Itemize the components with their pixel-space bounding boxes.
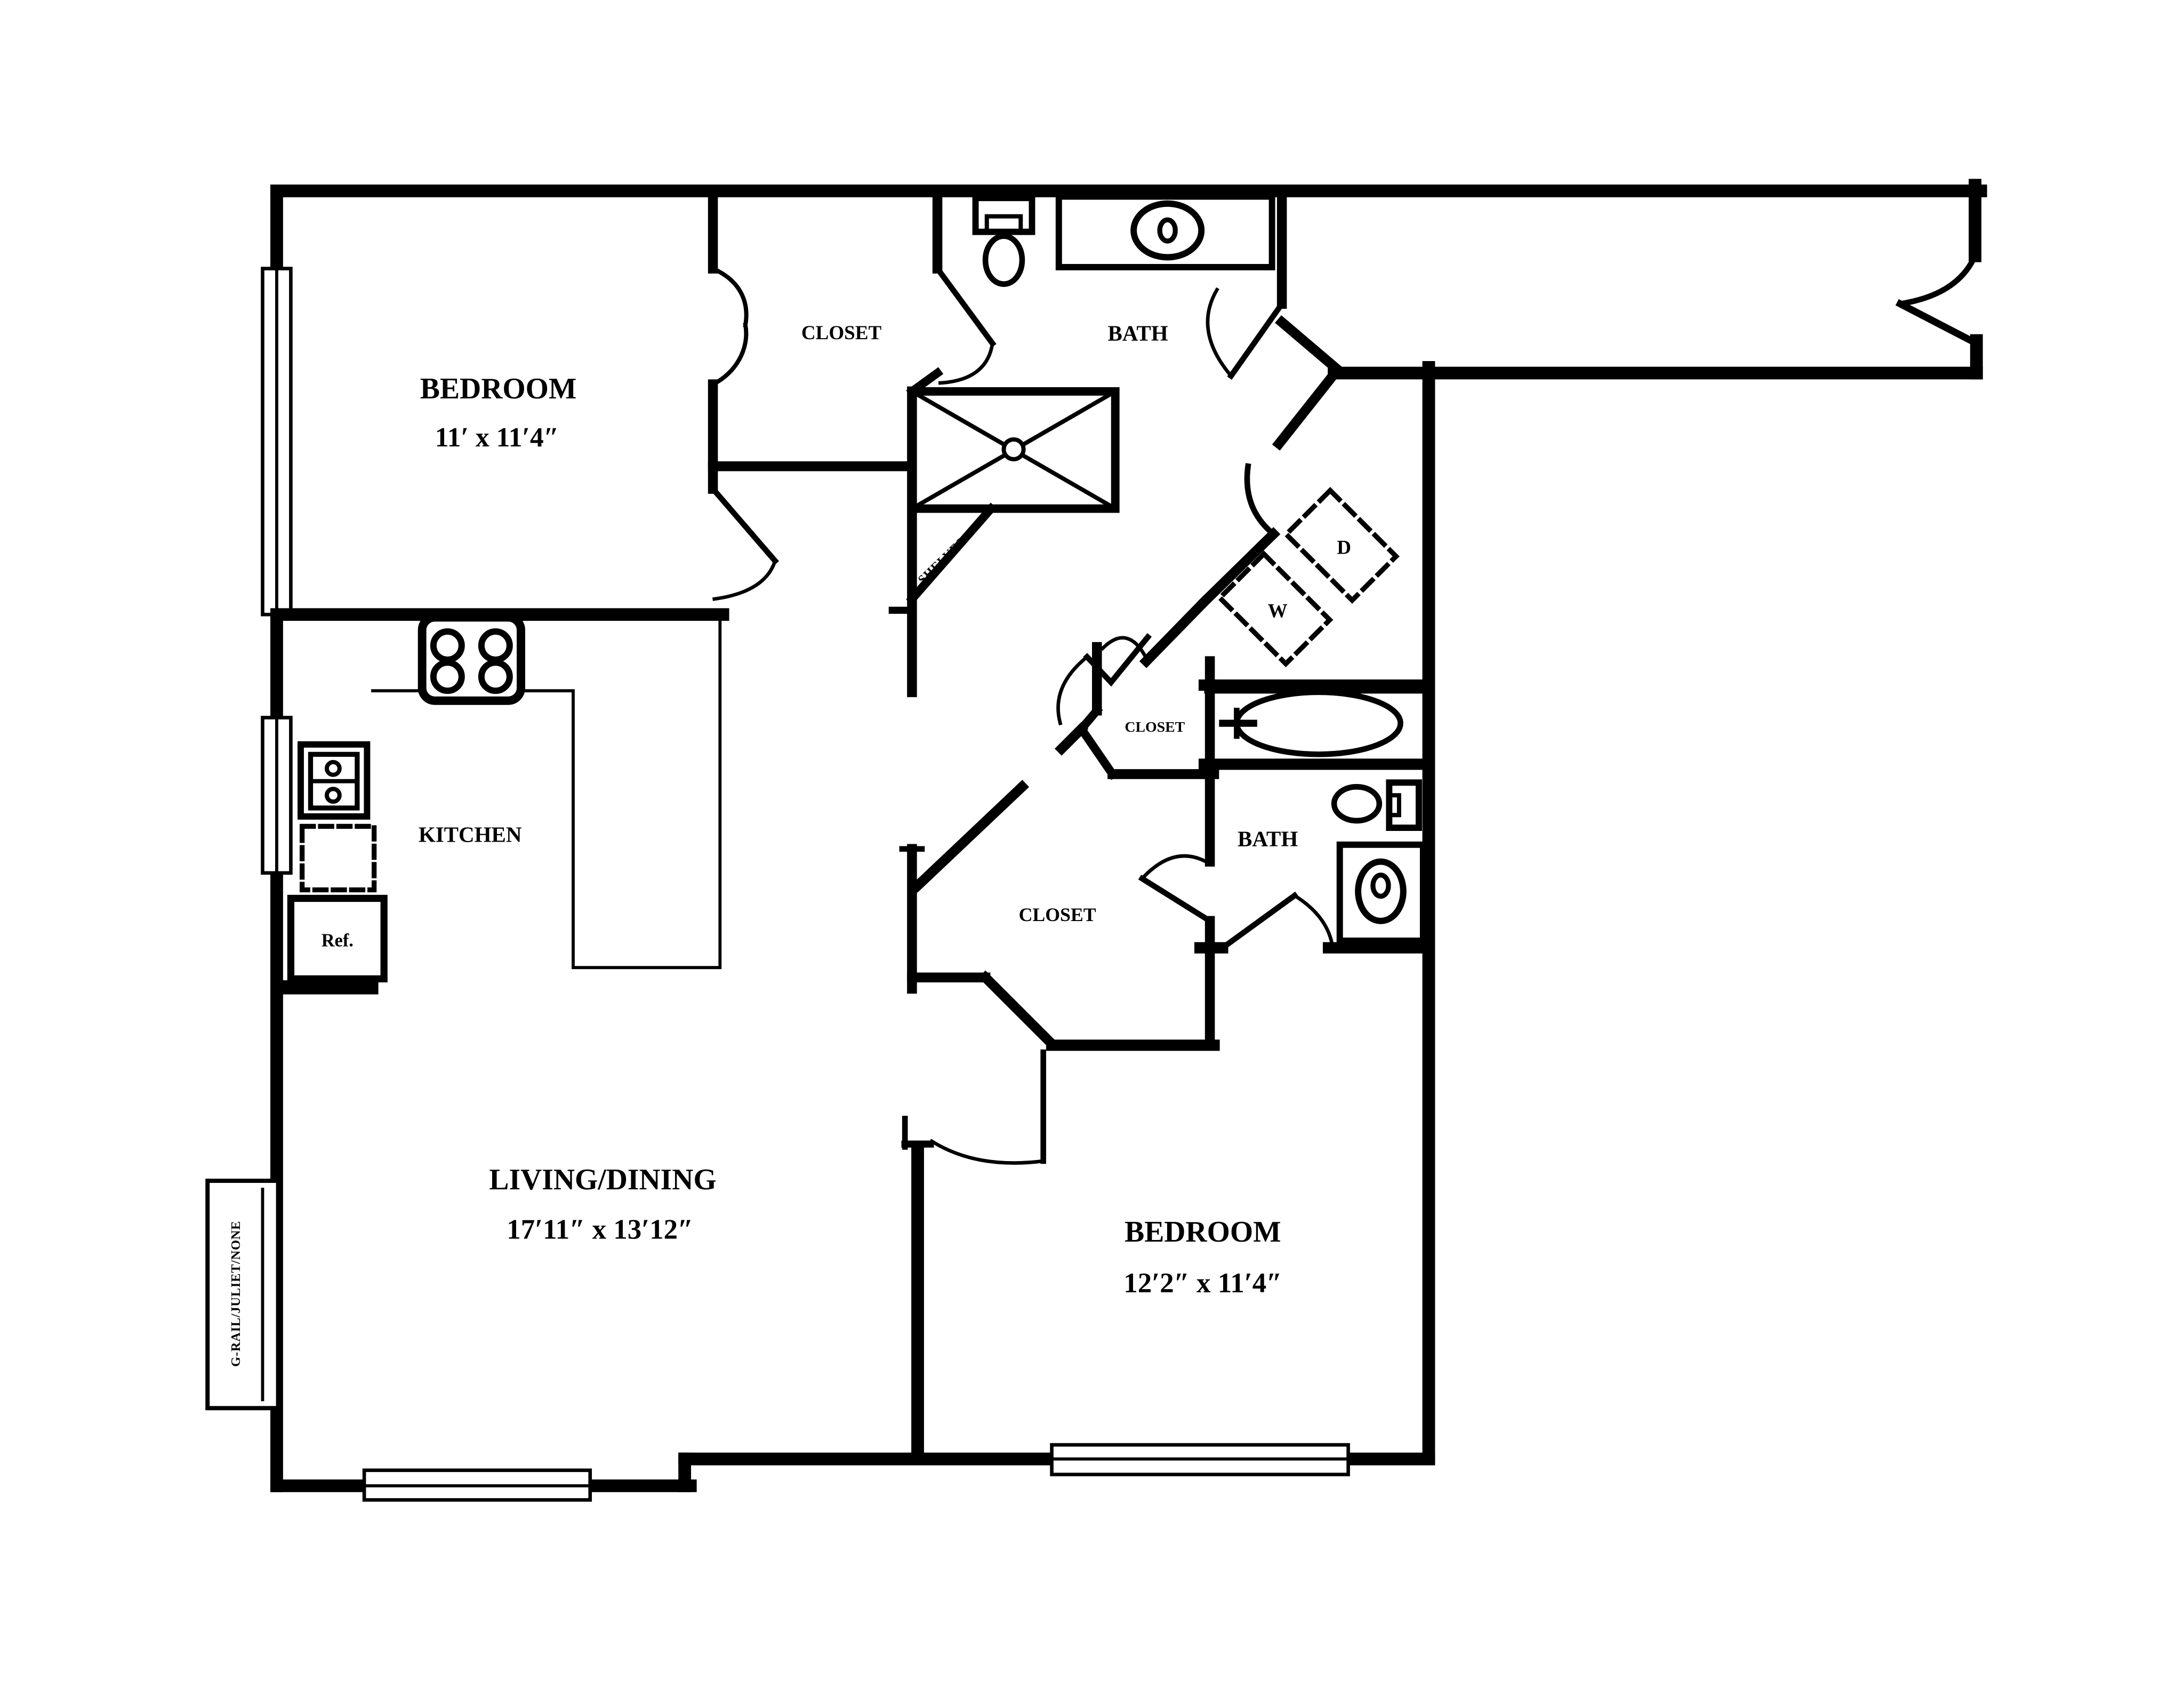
corridor-break-arc [1900,256,1975,304]
bath1-label: BATH [1107,321,1168,346]
wall-stub-below-fridge [277,980,379,994]
room-bedroom1: BEDROOM 11′ x 11′4″ [277,191,775,614]
kitchen-sink-icon [301,745,367,817]
room-small-closet: CLOSET [1081,638,1214,774]
small-closet-label: CLOSET [1125,719,1185,735]
window-kitchen-left [262,718,291,873]
wall-small-closet-sw [1081,729,1112,774]
bedroom1-door-leaf-icon [713,489,775,561]
bedroom2-label: BEDROOM [1125,1215,1281,1249]
wall-walkin-ne-lower [918,787,1022,885]
window-living-bottom [364,1470,590,1500]
stove-icon [422,618,521,701]
window-bedroom2-bottom [1052,1445,1348,1475]
wall-walkin-sw-diag [985,978,1051,1044]
bath1-hall-door-arc-icon [940,343,992,383]
washer-label: W [1268,601,1288,622]
wall-niche-diagonal [1279,376,1333,444]
bath1-door-arc-icon [1208,290,1231,376]
room-living-dining: LIVING/DINING 17′11″ x 13′12″ [489,1163,716,1245]
hall-door-arc-icon [1058,657,1087,723]
sink2-vanity-icon [1340,845,1423,941]
kitchen-label: KITCHEN [419,822,522,847]
bath1-door-leaf-icon [1231,304,1282,376]
wall-bath1-jog [1282,322,1338,370]
balcony-rail-box: G-RAIL/JULIET/NONE [207,1181,278,1408]
wall-hall-diag-a [1204,534,1273,602]
living-label: LIVING/DINING [489,1163,716,1196]
toilet-icon [976,198,1032,284]
sink-vanity-icon [1059,197,1272,267]
closet1-bifold-door-icon [713,269,746,385]
bath1-hall-door-leaf-icon [937,269,992,343]
bath2-door-arc-icon [1295,895,1332,948]
toilet2-icon [1334,782,1419,828]
window-bedroom1-left [262,269,291,615]
room-closet1: CLOSET [713,322,912,466]
dishwasher-icon [302,826,374,890]
room-bath2: BATH [1200,685,1429,948]
bedroom2-door-arc-icon [932,1141,1043,1163]
room-bath1: BATH [912,191,1338,391]
closet1-label: CLOSET [801,322,882,344]
floor-plan-svg: G-RAIL/JULIET/NONE BEDROOM 11′ x 11′4″ C… [0,0,2184,1688]
walkin-door-leaf-icon [1142,878,1210,921]
living-dims: 17′11″ x 13′12″ [507,1214,693,1245]
walkin-door-arc-icon [1142,856,1208,878]
shelves-label: SHELVES [916,535,968,587]
corridor-break-diagonal [1900,304,1977,343]
wall-walkin-ne-upper [1062,729,1081,749]
refrigerator-label: Ref. [322,930,354,950]
wall-hall-diag-b [1146,602,1205,661]
shelves-unit: SHELVES [892,391,1115,692]
windows: G-RAIL/JULIET/NONE [207,269,1348,1500]
bedroom2-dims: 12′2″ x 11′4″ [1123,1268,1282,1299]
shelves-knob-icon [1004,439,1024,459]
small-closet-door-arc-icon [1103,638,1146,658]
bath2-door-leaf-icon [1223,895,1295,948]
refrigerator-icon: Ref. [291,898,384,979]
bedroom1-label: BEDROOM [420,372,576,405]
floor-plan: G-RAIL/JULIET/NONE BEDROOM 11′ x 11′4″ C… [0,0,2184,1688]
room-bedroom2: BEDROOM 12′2″ x 11′4″ [905,1052,1282,1459]
bathtub-icon [1223,692,1401,754]
bedroom1-dims: 11′ x 11′4″ [435,422,559,453]
bath2-label: BATH [1238,826,1298,851]
room-kitchen: Ref. KITCHEN [277,618,720,995]
bedroom1-door-arc-icon [714,561,775,599]
dryer-label: D [1337,537,1351,558]
wd-door-leaf-icon [1247,466,1273,534]
walkin-closet-label: CLOSET [1019,904,1096,925]
balcony-rail-label: G-RAIL/JULIET/NONE [229,1221,243,1367]
